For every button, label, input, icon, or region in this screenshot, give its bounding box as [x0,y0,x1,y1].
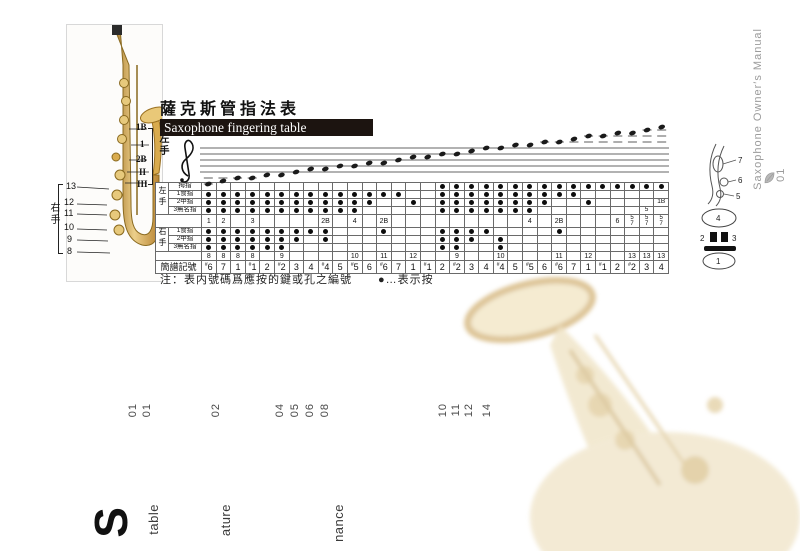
footnote-legend: ●…表示按 [378,274,434,286]
jianpu-cell: 4 [654,261,669,274]
fingering-cell [420,183,435,191]
aux-key-cell [391,252,406,261]
toc-page-number: 02 [210,403,222,417]
fingering-cell [391,191,406,199]
fingering-cell [493,207,508,215]
fingering-cell [552,183,567,191]
fingering-cell [537,228,552,236]
aux-key-cell: 11 [377,252,392,261]
fingering-cell [318,199,333,207]
pressed-dot [513,208,518,213]
fingering-cell [479,228,494,236]
aux-key-cell [274,215,289,228]
pressed-dot [323,200,328,205]
fingering-cell [581,199,596,207]
fingering-cell [450,191,465,199]
fingering-cell [333,191,348,199]
diagram-key-1: 1 [716,257,721,266]
pressed-dot [498,208,503,213]
pressed-dot [294,229,299,234]
aux-key-cell [596,215,611,228]
fingering-cell [362,207,377,215]
fingering-cell [260,244,275,252]
aux-key-cell [420,215,435,228]
left-hand-bracket [148,128,153,185]
pressed-dot [527,208,532,213]
aux-key-cell: 6 [610,215,625,228]
footnote-prefix: 注： [160,274,184,286]
pressed-dot [469,229,474,234]
pressed-dot [206,237,211,242]
fingering-cell [202,207,217,215]
side-caption-page: 01 [775,168,787,182]
fingering-cell [304,191,319,199]
fingering-cell [493,199,508,207]
pressed-dot [469,200,474,205]
fingering-cell [450,183,465,191]
diagram-key-7: 7 [738,156,743,165]
finger-label: 2中指 [169,199,202,207]
fingering-cell [523,244,538,252]
pressed-dot [308,229,313,234]
aux-key-cell: 8 [245,252,260,261]
hand-label: 右手 [156,228,169,252]
pressed-dot [221,208,226,213]
aux-key-cell: 57 [654,215,669,228]
key-label-10: 10 [64,222,74,232]
pressed-dot [308,208,313,213]
fingering-cell [523,183,538,191]
fingering-row: 2中指 [156,236,669,244]
pressed-dot [294,192,299,197]
jianpu-cell: #4 [493,261,508,274]
pressed-dot [542,192,547,197]
fingering-row: 888891011129101112131313 [156,252,669,261]
fingering-cell [318,207,333,215]
jianpu-cell: 4 [479,261,494,274]
fingering-cell [552,228,567,236]
pressed-dot [250,245,255,250]
aux-key-cell: 12 [581,252,596,261]
toc-page-number: 01 [127,403,139,417]
aux-key-cell [508,252,523,261]
fingering-cell [654,228,669,236]
jianpu-cell: #2 [450,261,465,274]
pressed-dot [454,229,459,234]
fingering-cell [537,183,552,191]
fingering-cell [639,244,654,252]
pressed-dot [206,229,211,234]
aux-key-cell [508,215,523,228]
aux-row-label [156,252,202,261]
fingering-cell [654,236,669,244]
fingering-cell [639,183,654,191]
fingering-cell [450,244,465,252]
fingering-cell [581,191,596,199]
diagram-key-5: 5 [736,192,741,201]
key-label-8: 8 [67,246,72,256]
fingering-cell [406,244,421,252]
fingering-cell [493,228,508,236]
right-hand-label: 右手 [46,202,61,226]
fingering-cell [523,228,538,236]
fingering-cell [216,244,231,252]
pressed-dot [250,229,255,234]
jianpu-cell: 5 [508,261,523,274]
fingering-cell [464,183,479,191]
pressed-dot [586,200,591,205]
pressed-dot [454,184,459,189]
fingering-cell [581,236,596,244]
aux-key-cell: 8 [216,252,231,261]
pressed-dot [235,237,240,242]
pressed-dot [557,184,562,189]
key-label-1: 1 [140,139,145,149]
aux-key-cell [406,215,421,228]
aux-key-cell [450,215,465,228]
pressed-dot [571,192,576,197]
page-title-zh: 薩克斯管指法表 [160,95,300,119]
fingering-cell [420,191,435,199]
toc-title-fragment: table [146,504,161,535]
fingering-cell [304,199,319,207]
fingering-cell [260,236,275,244]
pressed-dot [250,200,255,205]
pressed-dot [338,200,343,205]
fingering-cell [625,183,640,191]
aux-key-cell [420,252,435,261]
fingering-cell [333,183,348,191]
fingering-cell [260,191,275,199]
fingering-cell [333,207,348,215]
leaf-icon [764,172,775,184]
pressed-dot [513,184,518,189]
pressed-dot [454,208,459,213]
aux-key-cell [289,252,304,261]
pressed-dot [352,192,357,197]
fingering-cell [202,183,217,191]
fingering-cell [435,228,450,236]
pressed-dot [498,237,503,242]
fingering-cell [216,236,231,244]
pressed-dot [338,192,343,197]
pressed-dot [221,229,226,234]
fingering-cell [318,236,333,244]
aux-key-cell: 12 [406,252,421,261]
pressed-dot [440,237,445,242]
jianpu-cell: 2 [435,261,450,274]
side-caption-text: Saxophone Owner′s Manual [752,28,764,190]
fingering-cell [318,244,333,252]
aux-key-cell: 10 [347,252,362,261]
fingering-cell [318,228,333,236]
fingering-cell [318,191,333,199]
fingering-cell [479,191,494,199]
pressed-dot [644,184,649,189]
fingering-cell [231,244,246,252]
aux-key-cell: 1 [202,215,217,228]
fingering-row: 右手1食指 [156,228,669,236]
pressed-dot [294,208,299,213]
pressed-dot [250,208,255,213]
fingering-cell [493,236,508,244]
fingering-cell [202,228,217,236]
finger-label: 2中指 [169,236,202,244]
fingering-cell [420,207,435,215]
fingering-cell [639,236,654,244]
fingering-cell [464,236,479,244]
aux-key-cell: 4 [523,215,538,228]
toc-page-number: 11 [450,403,462,416]
fingering-cell [420,244,435,252]
toc-page-number: 14 [481,403,493,417]
aux-key-cell [566,252,581,261]
aux-key-cell [479,215,494,228]
fingering-cell [304,228,319,236]
manual-page: { "title": { "zh": "薩克斯管指法表", "en": "Sax… [0,0,800,551]
jianpu-cell: 3 [639,261,654,274]
toc-big-letter: S [84,507,138,538]
fingering-cell [377,191,392,199]
fingering-cell [479,244,494,252]
pressed-dot [542,184,547,189]
fingering-cell [231,199,246,207]
fingering-cell [347,207,362,215]
fingering-cell [581,183,596,191]
fingering-row: 3無名指5 [156,207,669,215]
fingering-cell [245,199,260,207]
aux-key-cell [391,215,406,228]
fingering-cell [479,199,494,207]
toc-page-number: 10 [437,403,449,417]
key-label-9: 9 [67,234,72,244]
fingering-cell [231,236,246,244]
fingering-cell [289,244,304,252]
pressed-dot [381,229,386,234]
fingering-cell [202,236,217,244]
fingering-cell [654,244,669,252]
fingering-cell [274,228,289,236]
aux-key-cell [333,215,348,228]
fingering-cell [245,207,260,215]
key-label-12: 12 [64,197,74,207]
jianpu-cell: #6 [552,261,567,274]
fingering-cell [610,183,625,191]
pressed-dot [338,208,343,213]
aux-key-cell [260,215,275,228]
fingering-cell [596,244,611,252]
fingering-cell [625,199,640,207]
pressed-dot [235,200,240,205]
aux-key-cell [537,252,552,261]
fingering-cell [435,207,450,215]
key-label-13: 13 [66,181,76,191]
fingering-cell [289,236,304,244]
pressed-dot [367,192,372,197]
key-label-2b: 2B [136,154,147,164]
fingering-cell [216,207,231,215]
fingering-cell [362,199,377,207]
pressed-dot [206,200,211,205]
aux-key-cell [596,252,611,261]
jianpu-cell: #2 [625,261,640,274]
diagram-key-4: 4 [716,214,721,223]
fingering-cell [537,199,552,207]
aux-key-cell: 8 [202,252,217,261]
fingering-cell [625,228,640,236]
pressed-dot [265,245,270,250]
fingering-cell [508,244,523,252]
fingering-cell [537,236,552,244]
pressed-dot [440,184,445,189]
fingering-cell [406,236,421,244]
aux-key-cell: 2 [216,215,231,228]
fingering-cell [479,236,494,244]
diagram-key-2: 2 [700,234,705,243]
aux-key-cell [333,252,348,261]
fingering-cell [566,236,581,244]
fingering-cell [289,207,304,215]
aux-key-cell: 9 [274,252,289,261]
aux-key-cell: 11 [552,252,567,261]
pressed-dot [571,184,576,189]
jianpu-cell: 2 [610,261,625,274]
aux-key-cell [362,215,377,228]
pressed-dot [498,192,503,197]
fingering-cell [493,183,508,191]
aux-key-cell [464,215,479,228]
fingering-cell [566,228,581,236]
pressed-dot [235,208,240,213]
pressed-dot [352,208,357,213]
fingering-cell [450,228,465,236]
fingering-cell [464,244,479,252]
fingering-cell [289,191,304,199]
fingering-cell [566,244,581,252]
key-label-11: 11 [64,208,73,218]
aux-key-cell [537,215,552,228]
finger-label: 1食指 [169,191,202,199]
fingering-cell [274,199,289,207]
fingering-cell [493,191,508,199]
pressed-dot [279,237,284,242]
pressed-dot [206,245,211,250]
pressed-dot [454,245,459,250]
pressed-dot [323,192,328,197]
fingering-cell [552,191,567,199]
aux-key-cell [318,252,333,261]
pressed-dot [279,200,284,205]
pressed-dot [527,184,532,189]
fingering-cell [581,228,596,236]
pressed-dot [279,229,284,234]
fingering-cell [435,244,450,252]
pressed-dot [498,245,503,250]
aux-key-cell [435,252,450,261]
fingering-cell [347,199,362,207]
fingering-cell [347,228,362,236]
fingering-cell [231,228,246,236]
fingering-cell [610,244,625,252]
fingering-cell [654,183,669,191]
pressed-dot [586,184,591,189]
fingering-cell [420,236,435,244]
aux-key-cell: 10 [493,252,508,261]
pressed-dot [454,192,459,197]
fingering-cell [245,244,260,252]
fingering-cell [596,207,611,215]
aux-key-cell [464,252,479,261]
aux-key-cell [581,215,596,228]
fingering-cell [625,236,640,244]
pressed-dot [469,192,474,197]
fingering-row: 1食指 [156,191,669,199]
fingering-cell [347,191,362,199]
fingering-cell [493,244,508,252]
fingering-cell [596,183,611,191]
fingering-cell [333,228,348,236]
fingering-cell [435,183,450,191]
fingering-cell [347,183,362,191]
pressed-dot [484,192,489,197]
fingering-cell [581,244,596,252]
fingering-cell [610,199,625,207]
toc-page-number: 08 [319,403,331,417]
aux-key-cell [362,252,377,261]
aux-key-cell: 8 [231,252,246,261]
fingering-row: 3無名指 [156,244,669,252]
fingering-cell [420,228,435,236]
key-label-iii: III [137,179,148,189]
finger-label: 拇指 [169,183,202,191]
fingering-cell [610,236,625,244]
fingering-cell [625,244,640,252]
pressed-dot [484,200,489,205]
pressed-dot [454,237,459,242]
jianpu-cell: 1 [581,261,596,274]
fingering-cell [377,236,392,244]
fingering-cell [596,228,611,236]
fingering-cell [260,207,275,215]
pressed-dot [367,200,372,205]
pressed-dot [469,237,474,242]
aux-key-cell [260,252,275,261]
pressed-dot [557,192,562,197]
pressed-dot [279,192,284,197]
fingering-cell [391,228,406,236]
fingering-cell [289,183,304,191]
fingering-cell [406,191,421,199]
fingering-cell [639,191,654,199]
fingering-cell [304,183,319,191]
aux-key-cell: 13 [625,252,640,261]
aux-key-cell: 3 [245,215,260,228]
aux-key-cell [304,215,319,228]
fingering-cell [274,191,289,199]
fingering-cell [362,228,377,236]
fingering-cell [304,244,319,252]
aux-key-cell: 2B [552,215,567,228]
pressed-dot [265,229,270,234]
pressed-dot [513,192,518,197]
hand-label: 左手 [156,183,169,215]
fingering-cell [654,207,669,215]
aux-row-label [156,215,202,228]
fingering-cell [377,199,392,207]
fingering-cell [552,236,567,244]
jianpu-cell: 7 [566,261,581,274]
pressed-dot [600,184,605,189]
